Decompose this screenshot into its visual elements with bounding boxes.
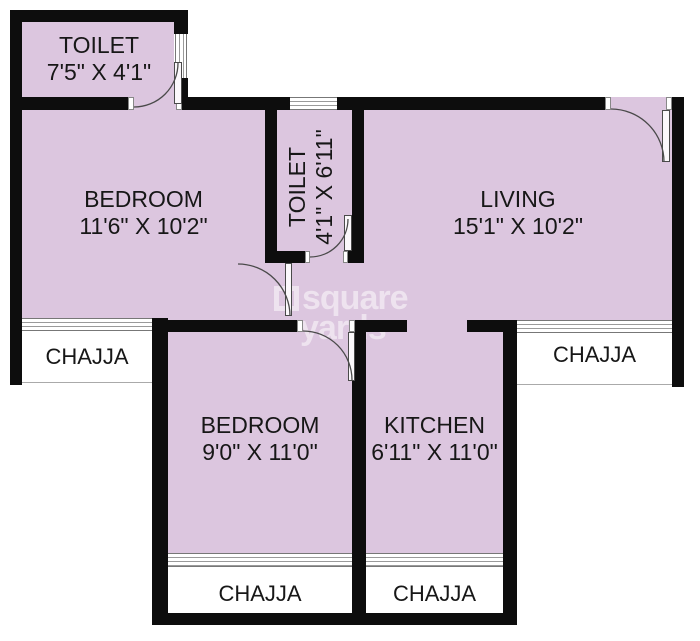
door-leaf [662, 110, 670, 162]
chajja-label-bottom-right: CHAJJA [366, 581, 503, 607]
chajja-edge [22, 382, 152, 383]
floor-area-toilet-door-gap [134, 97, 176, 110]
wall [10, 97, 128, 110]
room-label-toilet-top: TOILET 7'5" X 4'1" [22, 32, 176, 86]
watermark: square yards [274, 281, 408, 345]
door-jamb [297, 320, 303, 332]
room-name: KITCHEN [366, 412, 503, 439]
room-dimensions: 4'1" X 6'11" [311, 112, 338, 262]
door-jamb [666, 97, 672, 110]
door-jamb [349, 320, 355, 332]
room-name: TOILET [284, 112, 311, 262]
chajja-edge [517, 384, 672, 385]
room-name: BEDROOM [168, 412, 352, 439]
room-label-bedroom-bottom: BEDROOM 9'0" X 11'0" [168, 412, 352, 466]
room-dimensions: 7'5" X 4'1" [22, 59, 176, 86]
room-label-toilet-mid: TOILET 4'1" X 6'11" [284, 112, 340, 262]
room-name: LIVING [358, 186, 678, 213]
door-leaf [348, 332, 355, 381]
floor-area-entrance-gap [611, 97, 666, 110]
room-dimensions: 15'1" X 10'2" [358, 213, 678, 240]
chajja-label-left: CHAJJA [22, 344, 152, 370]
wall [152, 613, 517, 625]
wall [672, 97, 684, 387]
wall [152, 318, 168, 625]
room-label-living: LIVING 15'1" X 10'2" [358, 186, 678, 240]
window [517, 320, 672, 333]
door-jamb [343, 251, 348, 263]
window [168, 553, 352, 567]
room-label-bedroom-top: BEDROOM 11'6" X 10'2" [22, 186, 265, 240]
room-dimensions: 11'6" X 10'2" [22, 213, 265, 240]
wall [265, 110, 277, 263]
chajja-label-bottom-left: CHAJJA [168, 581, 352, 607]
wall [503, 320, 517, 625]
window [366, 553, 503, 567]
wall [168, 320, 297, 332]
floor-plan: square yards [0, 0, 700, 641]
wall [174, 10, 188, 34]
wall [10, 10, 22, 385]
door-jamb [605, 97, 611, 110]
room-label-kitchen: KITCHEN 6'11" X 11'0" [366, 412, 503, 466]
door-leaf [285, 263, 292, 316]
wall [348, 251, 364, 263]
room-name: TOILET [22, 32, 176, 59]
wall [182, 97, 290, 110]
room-name: BEDROOM [22, 186, 265, 213]
room-dimensions: 9'0" X 11'0" [168, 439, 352, 466]
window [290, 97, 337, 110]
window [22, 318, 152, 331]
door-leaf [344, 215, 352, 251]
chajja-label-right: CHAJJA [517, 342, 672, 368]
door-jamb [128, 97, 134, 110]
room-dimensions: 6'11" X 11'0" [366, 439, 503, 466]
wall [10, 10, 188, 22]
wall [337, 97, 605, 110]
